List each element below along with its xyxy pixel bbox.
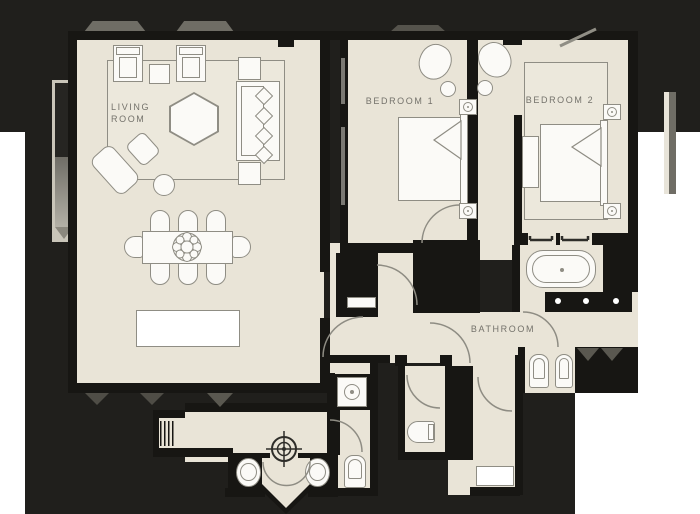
vanity-sink-dots [555,298,619,304]
sofa-cushions [256,88,273,164]
floorplan-canvas: LIVING ROOM BEDROOM 1 BEDROOM 2 BATHROOM [0,0,700,514]
door-swing-corridor [478,377,512,411]
compass-rose [266,431,302,467]
door-swing-entry [263,462,310,486]
bedroom1-label: BEDROOM 1 [355,95,445,107]
door-swing-utility [330,420,362,452]
bedroom2-open-door [560,29,596,46]
bed-fold-triangles [434,121,601,166]
bathroom-label: BATHROOM [462,323,544,335]
bedroom2-label: BEDROOM 2 [515,94,605,106]
towel-rails [530,236,588,240]
door-swing-hall-entrance [323,317,363,357]
living-room-label: LIVING ROOM [111,101,167,125]
door-swing-wc [407,375,440,408]
door-swing-hall-a [377,265,417,305]
detail-overlay [0,0,700,514]
door-swing-bedroom1 [422,205,460,243]
dining-centerpiece [173,233,202,262]
